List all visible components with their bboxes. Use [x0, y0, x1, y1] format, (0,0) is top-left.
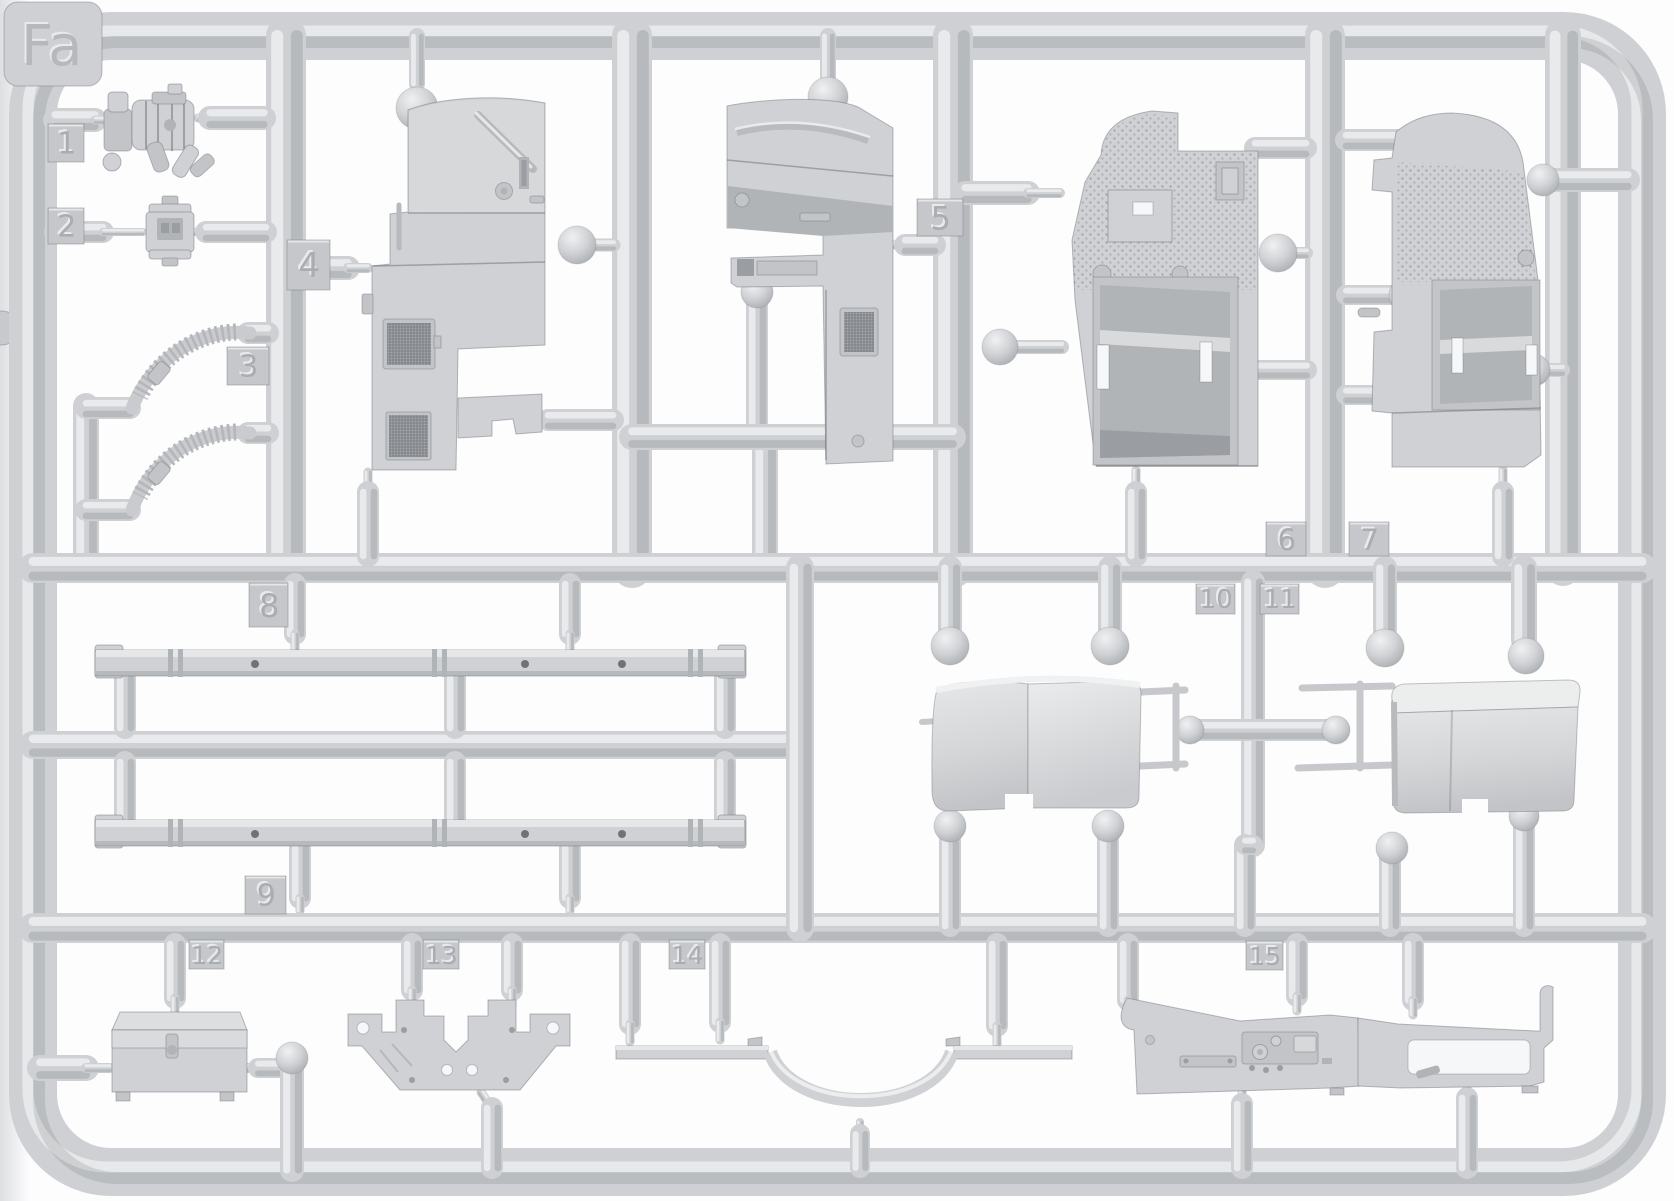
runner-tube [794, 568, 808, 928]
runner-tube [759, 437, 772, 568]
part-tag-number: 6 [1278, 523, 1296, 557]
runner-tube [565, 848, 576, 898]
runner-tube [568, 898, 572, 911]
runner-tube [206, 227, 266, 238]
part-6-stowage-panel [1072, 111, 1258, 466]
runner-tube [625, 944, 636, 1024]
runner-tube [565, 584, 576, 634]
runner-tube [298, 898, 302, 911]
gate-ball [1091, 627, 1129, 665]
runner-tube [1248, 582, 1260, 845]
sprue-photo: Fa Fa 1122334455667788991010111112121313… [0, 0, 1674, 1201]
part-14-arch-strip [616, 1037, 1072, 1100]
part-tag-number: 4 [298, 246, 320, 286]
runner-tube [86, 505, 130, 516]
runner-tube [1380, 568, 1392, 630]
part-5-grille [840, 308, 878, 356]
runner-tube [1237, 1104, 1248, 1168]
part-15-dashboard [1121, 986, 1553, 1095]
part-tag-2: 22 [48, 207, 84, 244]
runner-tube [856, 1134, 866, 1168]
runner-tube [293, 634, 297, 650]
runner-tube [86, 403, 130, 414]
part-tag-11: 1111 [1260, 583, 1299, 615]
runner-tube [1123, 944, 1134, 1000]
part-tag-number: 1 [57, 126, 76, 161]
gate-ball [1366, 629, 1404, 667]
gate-ball [1508, 638, 1544, 674]
part-6-stowage-box [1093, 277, 1238, 465]
part-tag-1: 11 [48, 124, 84, 162]
runner-tube [1190, 725, 1338, 736]
part-4-panel [362, 98, 545, 470]
runner-tube [905, 240, 935, 251]
runner-tube [1014, 344, 1062, 351]
runner-tube [568, 634, 572, 650]
part-tag-8: 88 [249, 583, 288, 627]
runner-tube [1411, 1000, 1415, 1015]
runner-tube [1555, 36, 1573, 568]
runner-tube [944, 36, 964, 568]
runner-tube [945, 568, 957, 628]
runner-tube [623, 36, 643, 568]
runner-tube [1548, 175, 1628, 187]
part-tag-number: 11 [1264, 585, 1297, 615]
part-tag-9: 99 [245, 876, 286, 914]
runner-tube [487, 1108, 498, 1168]
runner-tube [1385, 855, 1396, 926]
part-10-seat [922, 679, 1185, 811]
runner-tube [120, 762, 131, 818]
part-tag-number: 3 [239, 349, 258, 384]
gate-ball [931, 627, 969, 665]
sprue-label-tab: Fa Fa [4, 2, 102, 86]
runner-tube [170, 944, 181, 998]
runner-tube [173, 998, 177, 1013]
runner-tube [33, 561, 1642, 576]
runner-tube [103, 230, 143, 234]
runner-tube [86, 1066, 110, 1071]
runner-tube [450, 762, 461, 818]
runner-tube [120, 678, 131, 728]
gate-ball [1322, 716, 1350, 744]
part-tag-number: 7 [1361, 523, 1379, 557]
part-4-grille-lower [386, 412, 431, 460]
runner-tube [1518, 568, 1531, 640]
runner-tube [995, 1026, 999, 1044]
runner-tube [210, 113, 264, 125]
gate-ball [1259, 234, 1297, 272]
part-tag-10: 1010 [1196, 583, 1235, 615]
runner-tube [40, 1062, 86, 1075]
runner-tube [718, 1022, 722, 1040]
runner-tube [720, 678, 731, 728]
part-tag-15: 1515 [1246, 940, 1283, 971]
part-tag-number: 10 [1200, 585, 1233, 615]
part-13-bracket [348, 1000, 570, 1090]
part-tag-number: 14 [672, 941, 704, 970]
runner-tube [628, 1024, 632, 1042]
part-tag-number: 9 [257, 878, 276, 913]
part-4-grille-upper [383, 319, 441, 369]
part-tag-number: 12 [191, 941, 223, 970]
runner-tube [1408, 944, 1419, 1000]
part-tag-number: 8 [259, 587, 279, 625]
part-9-rail [95, 815, 746, 848]
part-tag-number: 15 [1249, 942, 1281, 971]
runner-tube [290, 584, 301, 634]
part-tag-6: 66 [1266, 521, 1306, 557]
part-tag-5: 55 [917, 197, 963, 237]
runner-tube [1316, 36, 1336, 568]
svg-text:Fa: Fa [21, 14, 82, 79]
part-tag-number: 2 [57, 209, 76, 244]
part-tag-4: 44 [287, 240, 330, 290]
runner-tube [287, 1062, 299, 1170]
runner-tube [945, 832, 956, 926]
runner-tube [450, 678, 461, 728]
runner-tube [80, 406, 93, 568]
gate-ball [276, 1042, 308, 1074]
gate-ball [982, 329, 1018, 365]
part-tag-number: 13 [426, 941, 458, 970]
runner-tube [1295, 996, 1299, 1011]
runner-tube [715, 944, 726, 1022]
runner-tube [1346, 291, 1394, 301]
gate-ball [934, 810, 966, 842]
runner-tube [1131, 492, 1142, 556]
runner-tube [348, 266, 368, 271]
part-7-stowage-box [1432, 280, 1540, 410]
runner-tube [548, 415, 613, 426]
runner-tube [277, 36, 297, 568]
part-tag-12: 1212 [189, 939, 224, 970]
runner-tube [1462, 1098, 1473, 1168]
part-tag-13: 1313 [423, 939, 459, 970]
gate-ball [558, 226, 596, 264]
runner-tube [1240, 845, 1251, 926]
runner-tube [1103, 832, 1114, 926]
part-tag-7: 77 [1349, 521, 1389, 557]
gate-ball [1176, 716, 1204, 744]
part-8-rail [95, 645, 746, 678]
runner-tube [33, 739, 800, 753]
runner-tube [824, 36, 832, 78]
runner-tube [1245, 841, 1253, 851]
part-tag-number: 5 [931, 199, 951, 237]
gate-ball [1376, 832, 1408, 864]
runner-tube [507, 944, 518, 990]
runner-tube [1105, 568, 1117, 628]
runner-tube [413, 36, 421, 84]
part-tag-3: 33 [227, 347, 269, 385]
sprue-render: Fa Fa 1122334455667788991010111112121313… [0, 0, 1674, 1201]
part-2-drum [146, 196, 194, 266]
runner-tube [992, 944, 1003, 1026]
part-12-toolbox [112, 1012, 247, 1101]
runner-tube [720, 762, 731, 818]
gate-ball [1527, 164, 1559, 196]
runner-tube [407, 944, 418, 990]
runner-tube [1258, 366, 1307, 376]
part-tag-14: 1414 [669, 939, 705, 970]
runner-tube [363, 492, 374, 556]
runner-tube [1255, 143, 1306, 154]
part-1-compressor [103, 84, 216, 180]
runner-tube [632, 431, 953, 444]
runner-tube [752, 300, 763, 428]
runner-tube [1028, 191, 1060, 196]
runner-tube [295, 848, 306, 898]
runner-tube [1519, 822, 1530, 926]
runner-tube [965, 188, 1028, 200]
gate-ball [1092, 810, 1124, 842]
runner-tube [1292, 944, 1303, 996]
part-11-seat [1298, 680, 1580, 813]
runner-tube [1498, 492, 1509, 556]
